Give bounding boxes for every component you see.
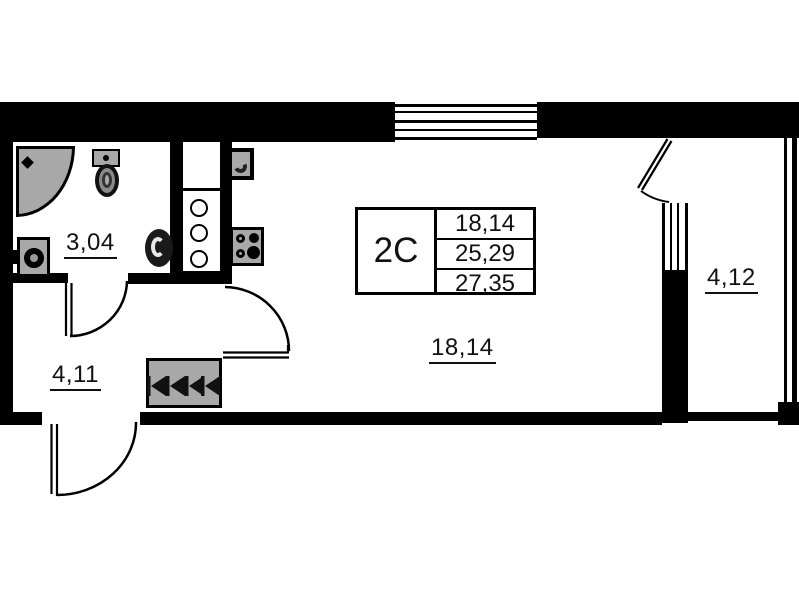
cabinet-knob — [190, 199, 208, 217]
window-line — [395, 137, 537, 140]
unit-info-table: 2С 18,14 25,29 27,35 — [355, 207, 536, 295]
washbasin-faucet-icon — [10, 250, 19, 264]
wall-left — [0, 142, 13, 425]
bathroom-door-icon — [66, 281, 127, 337]
round-sink-icon — [145, 229, 173, 267]
living-room-door-icon — [223, 287, 289, 358]
area-total-no-balcony: 25,29 — [437, 240, 533, 270]
sink-unit-drain — [232, 158, 249, 175]
wall-balcony-right-outer — [792, 138, 797, 402]
window-line — [395, 111, 537, 113]
toilet-bowl-inner — [102, 172, 112, 188]
unit-label: 2С — [358, 210, 437, 292]
wall-balcony-right-inner — [784, 138, 787, 402]
room-label-living-room: 18,14 — [429, 336, 496, 364]
window-line — [685, 203, 688, 270]
kitchen-cabinet-icon — [180, 142, 220, 275]
washbasin-bowl — [24, 248, 44, 268]
floor-plan: 2С 18,14 25,29 27,35 3,04 4,11 18,14 4,1… — [0, 0, 799, 600]
wall-bottom-corner — [0, 412, 42, 425]
wall-balcony-partition — [662, 270, 688, 423]
window-line — [670, 203, 672, 270]
wall-balcony-corner — [778, 402, 799, 425]
wall-top-right — [537, 102, 799, 138]
wall-balcony-bottom — [688, 412, 780, 421]
cabinet-knob — [190, 250, 208, 268]
window-icon — [395, 102, 537, 142]
cabinet-knob — [190, 224, 208, 242]
area-living: 18,14 — [437, 210, 533, 240]
stove-icon — [230, 227, 264, 266]
radiator-icon — [146, 358, 222, 408]
area-total: 27,35 — [437, 270, 533, 298]
stove-burner — [236, 249, 245, 258]
stove-burner — [247, 246, 260, 259]
room-label-hallway: 4,11 — [50, 363, 101, 391]
wall-top-left — [0, 102, 395, 142]
balcony-door-icon — [638, 139, 672, 202]
window-line — [395, 120, 537, 123]
sink-unit-icon — [228, 148, 254, 180]
window-line — [395, 104, 537, 107]
stove-burner — [249, 233, 259, 243]
shower-drain-icon — [21, 156, 34, 169]
stove-burner — [236, 234, 245, 243]
unit-areas: 18,14 25,29 27,35 — [437, 210, 533, 292]
window-line — [395, 129, 537, 131]
window-line — [662, 203, 665, 270]
window-line — [677, 203, 679, 270]
cabinet-divider — [183, 188, 220, 191]
corner-shower-icon — [16, 146, 75, 217]
room-label-bathroom: 3,04 — [64, 231, 117, 259]
round-sink-bowl — [151, 237, 165, 257]
wall-bottom-main — [140, 412, 662, 425]
toilet-tank-dot — [103, 155, 109, 161]
room-label-balcony: 4,12 — [705, 266, 758, 294]
balcony-window-icon — [662, 203, 688, 270]
entrance-door-icon — [52, 422, 137, 496]
washbasin-icon — [17, 237, 50, 277]
toilet-bowl-icon — [95, 164, 119, 197]
